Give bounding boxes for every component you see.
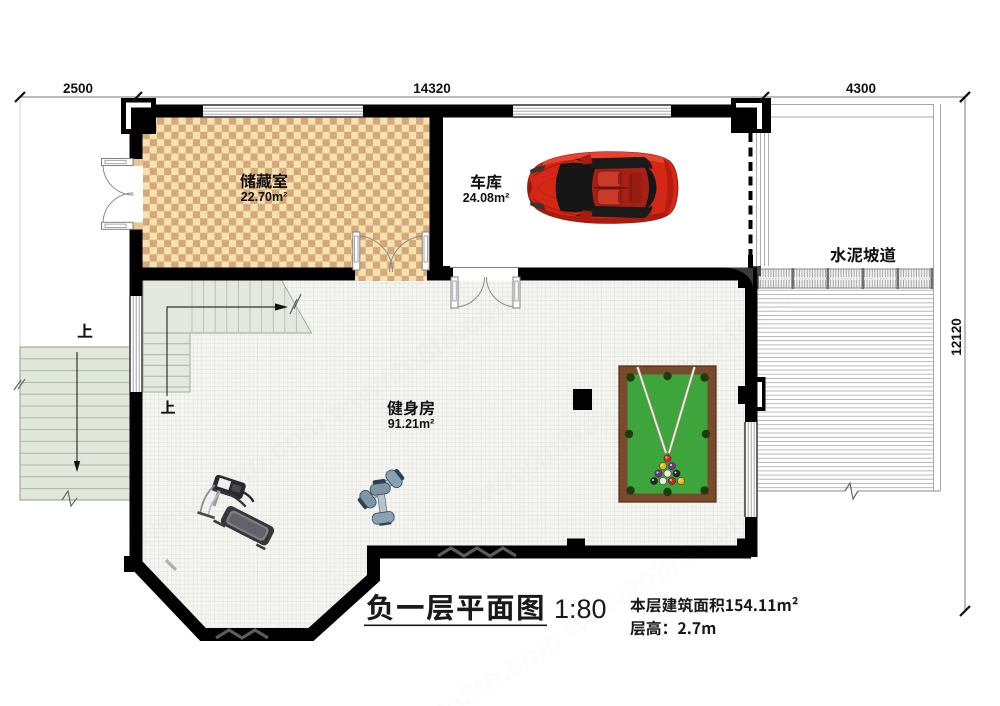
svg-text:12120: 12120 — [949, 318, 964, 356]
svg-text:2500: 2500 — [63, 81, 93, 96]
svg-text:14320: 14320 — [413, 81, 451, 96]
svg-text:91.21m²: 91.21m² — [388, 417, 435, 431]
svg-text:24.08m²: 24.08m² — [463, 191, 510, 205]
svg-text:1:80: 1:80 — [554, 594, 607, 624]
svg-text:22.70m²: 22.70m² — [241, 190, 288, 204]
svg-text:4300: 4300 — [846, 81, 876, 96]
